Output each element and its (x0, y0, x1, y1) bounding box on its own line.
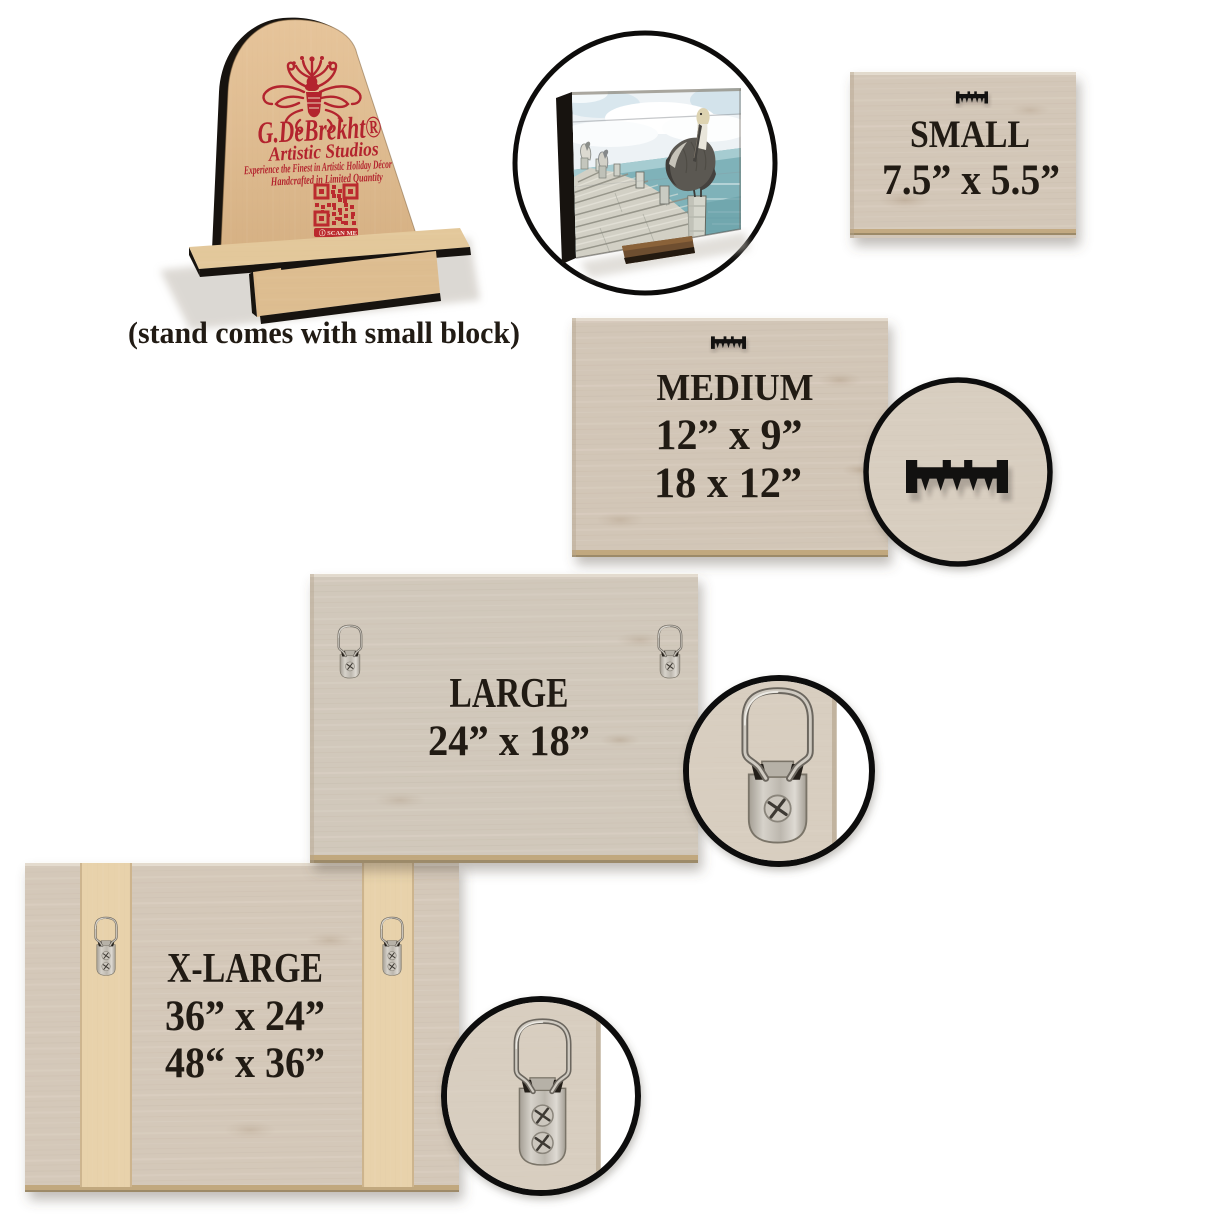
svg-text:7.5” x 5.5”: 7.5” x 5.5” (882, 157, 1060, 204)
svg-text:(stand comes with small block): (stand comes with small block) (128, 315, 520, 350)
svg-text:12” x 9”: 12” x 9” (656, 412, 803, 459)
svg-text:MEDIUM: MEDIUM (657, 367, 814, 409)
svg-text:36” x 24”: 36” x 24” (165, 993, 325, 1040)
svg-text:LARGE: LARGE (450, 671, 569, 717)
svg-text:SMALL: SMALL (910, 113, 1030, 156)
svg-text:18 x 12”: 18 x 12” (654, 460, 802, 507)
svg-text:48“ x 36”: 48“ x 36” (165, 1040, 325, 1087)
svg-text:X-LARGE: X-LARGE (167, 946, 323, 992)
svg-text:24” x 18”: 24” x 18” (428, 718, 590, 765)
